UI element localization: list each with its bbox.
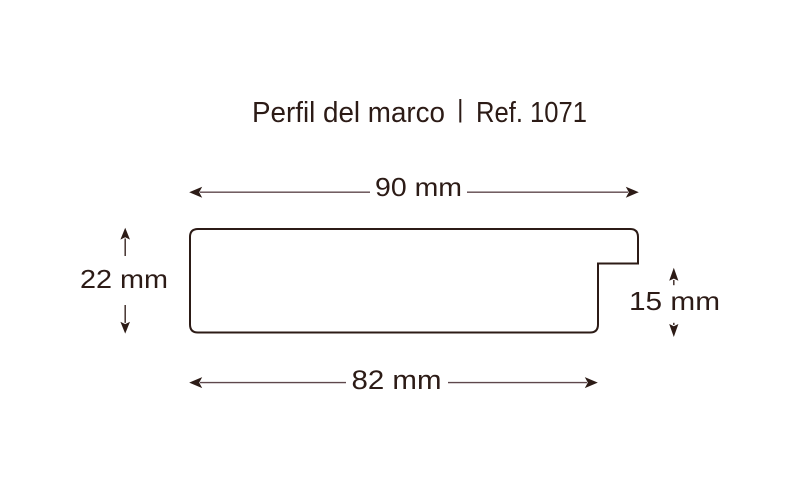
svg-text:15 mm: 15 mm (629, 286, 720, 316)
svg-text:Ref. 1071: Ref. 1071 (476, 97, 587, 129)
svg-text:82 mm: 82 mm (352, 365, 442, 395)
svg-text:90 mm: 90 mm (375, 172, 462, 202)
svg-text:Perfil del marco: Perfil del marco (252, 97, 445, 129)
svg-text:22 mm: 22 mm (80, 264, 168, 294)
